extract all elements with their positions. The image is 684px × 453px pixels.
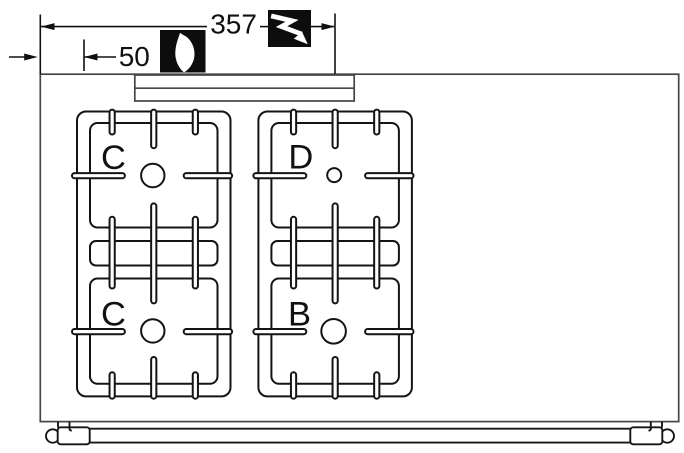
svg-text:C: C <box>101 139 126 177</box>
svg-text:B: B <box>288 295 311 333</box>
svg-text:357: 357 <box>210 8 257 39</box>
svg-text:C: C <box>101 295 126 333</box>
svg-text:D: D <box>288 139 313 177</box>
svg-text:50: 50 <box>119 41 150 72</box>
